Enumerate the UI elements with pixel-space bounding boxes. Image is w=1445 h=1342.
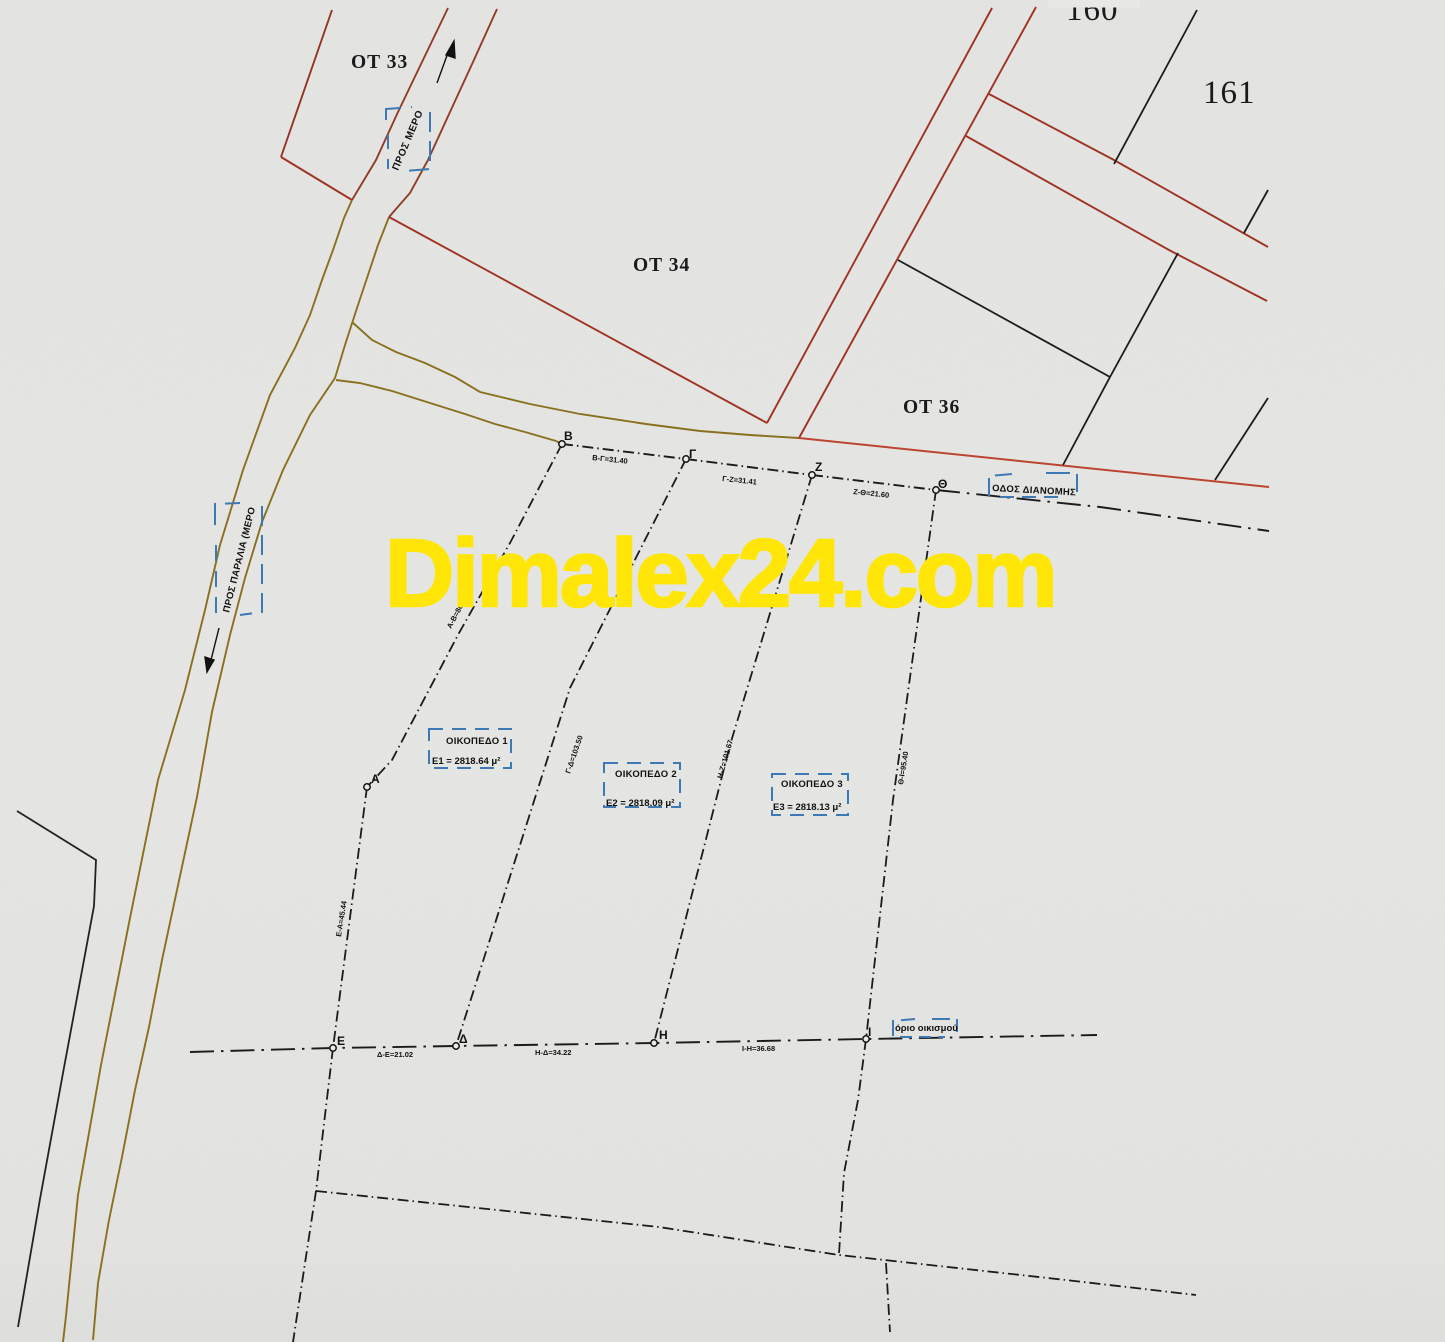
svg-text:OT 33: OT 33 (351, 52, 408, 73)
svg-text:Ζ: Ζ (815, 460, 822, 474)
svg-text:Ε2 = 2818.09 μ²: Ε2 = 2818.09 μ² (606, 798, 674, 809)
svg-text:Δ: Δ (459, 1032, 468, 1046)
svg-text:Ε: Ε (337, 1034, 345, 1048)
svg-text:Α: Α (371, 772, 380, 786)
svg-text:Dimalex24.com: Dimalex24.com (385, 520, 1055, 627)
svg-text:Ι: Ι (868, 1025, 871, 1039)
svg-text:Η: Η (659, 1028, 668, 1042)
svg-text:Θ: Θ (938, 477, 947, 491)
svg-text:Ε1 = 2818.64 μ²: Ε1 = 2818.64 μ² (432, 756, 500, 767)
svg-text:161: 161 (1203, 75, 1256, 111)
svg-text:Ι-Η=36.68: Ι-Η=36.68 (742, 1044, 775, 1053)
svg-text:ΟΙΚΟΠΕΔΟ 2: ΟΙΚΟΠΕΔΟ 2 (615, 769, 677, 780)
svg-text:Η-Δ=34.22: Η-Δ=34.22 (535, 1048, 571, 1057)
svg-text:Δ-Ε=21.02: Δ-Ε=21.02 (377, 1050, 413, 1059)
svg-text:ΟΙΚΟΠΕΔΟ 3: ΟΙΚΟΠΕΔΟ 3 (781, 779, 843, 790)
svg-text:ΟΙΚΟΠΕΔΟ 1: ΟΙΚΟΠΕΔΟ 1 (446, 736, 508, 747)
svg-text:OT 34: OT 34 (633, 255, 690, 276)
svg-text:OT 36: OT 36 (903, 397, 960, 418)
svg-text:όριο οικισμού: όριο οικισμού (895, 1023, 958, 1034)
svg-text:Β: Β (564, 429, 573, 443)
svg-text:Ε3 = 2818.13 μ²: Ε3 = 2818.13 μ² (773, 802, 841, 813)
svg-text:Γ: Γ (689, 447, 697, 461)
